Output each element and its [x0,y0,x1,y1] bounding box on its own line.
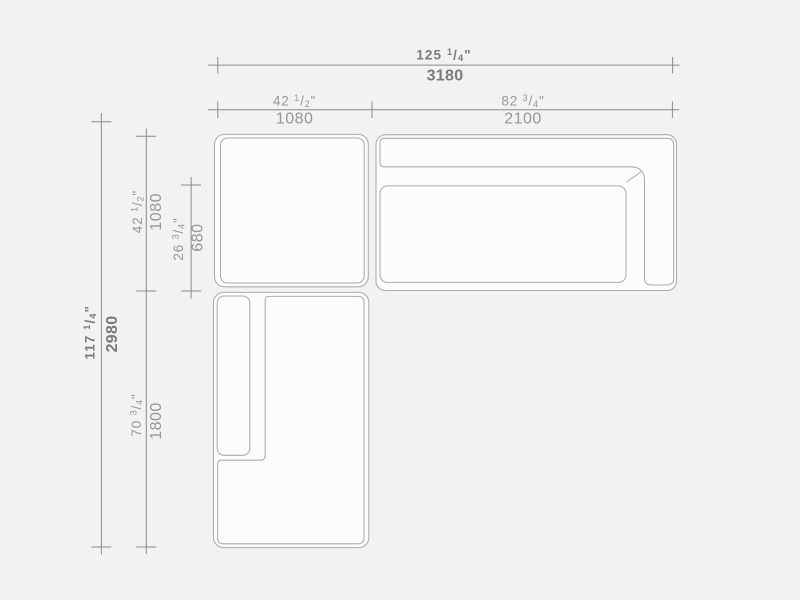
svg-text:2980: 2980 [104,316,121,353]
svg-text:1080: 1080 [276,111,314,128]
svg-text:1080: 1080 [148,193,165,231]
svg-text:117 1/4": 117 1/4" [82,305,98,360]
svg-text:680: 680 [190,223,207,251]
svg-text:125 1/4": 125 1/4" [416,47,472,63]
svg-text:2100: 2100 [504,111,542,128]
svg-text:1800: 1800 [148,402,165,440]
svg-text:3180: 3180 [427,67,464,84]
